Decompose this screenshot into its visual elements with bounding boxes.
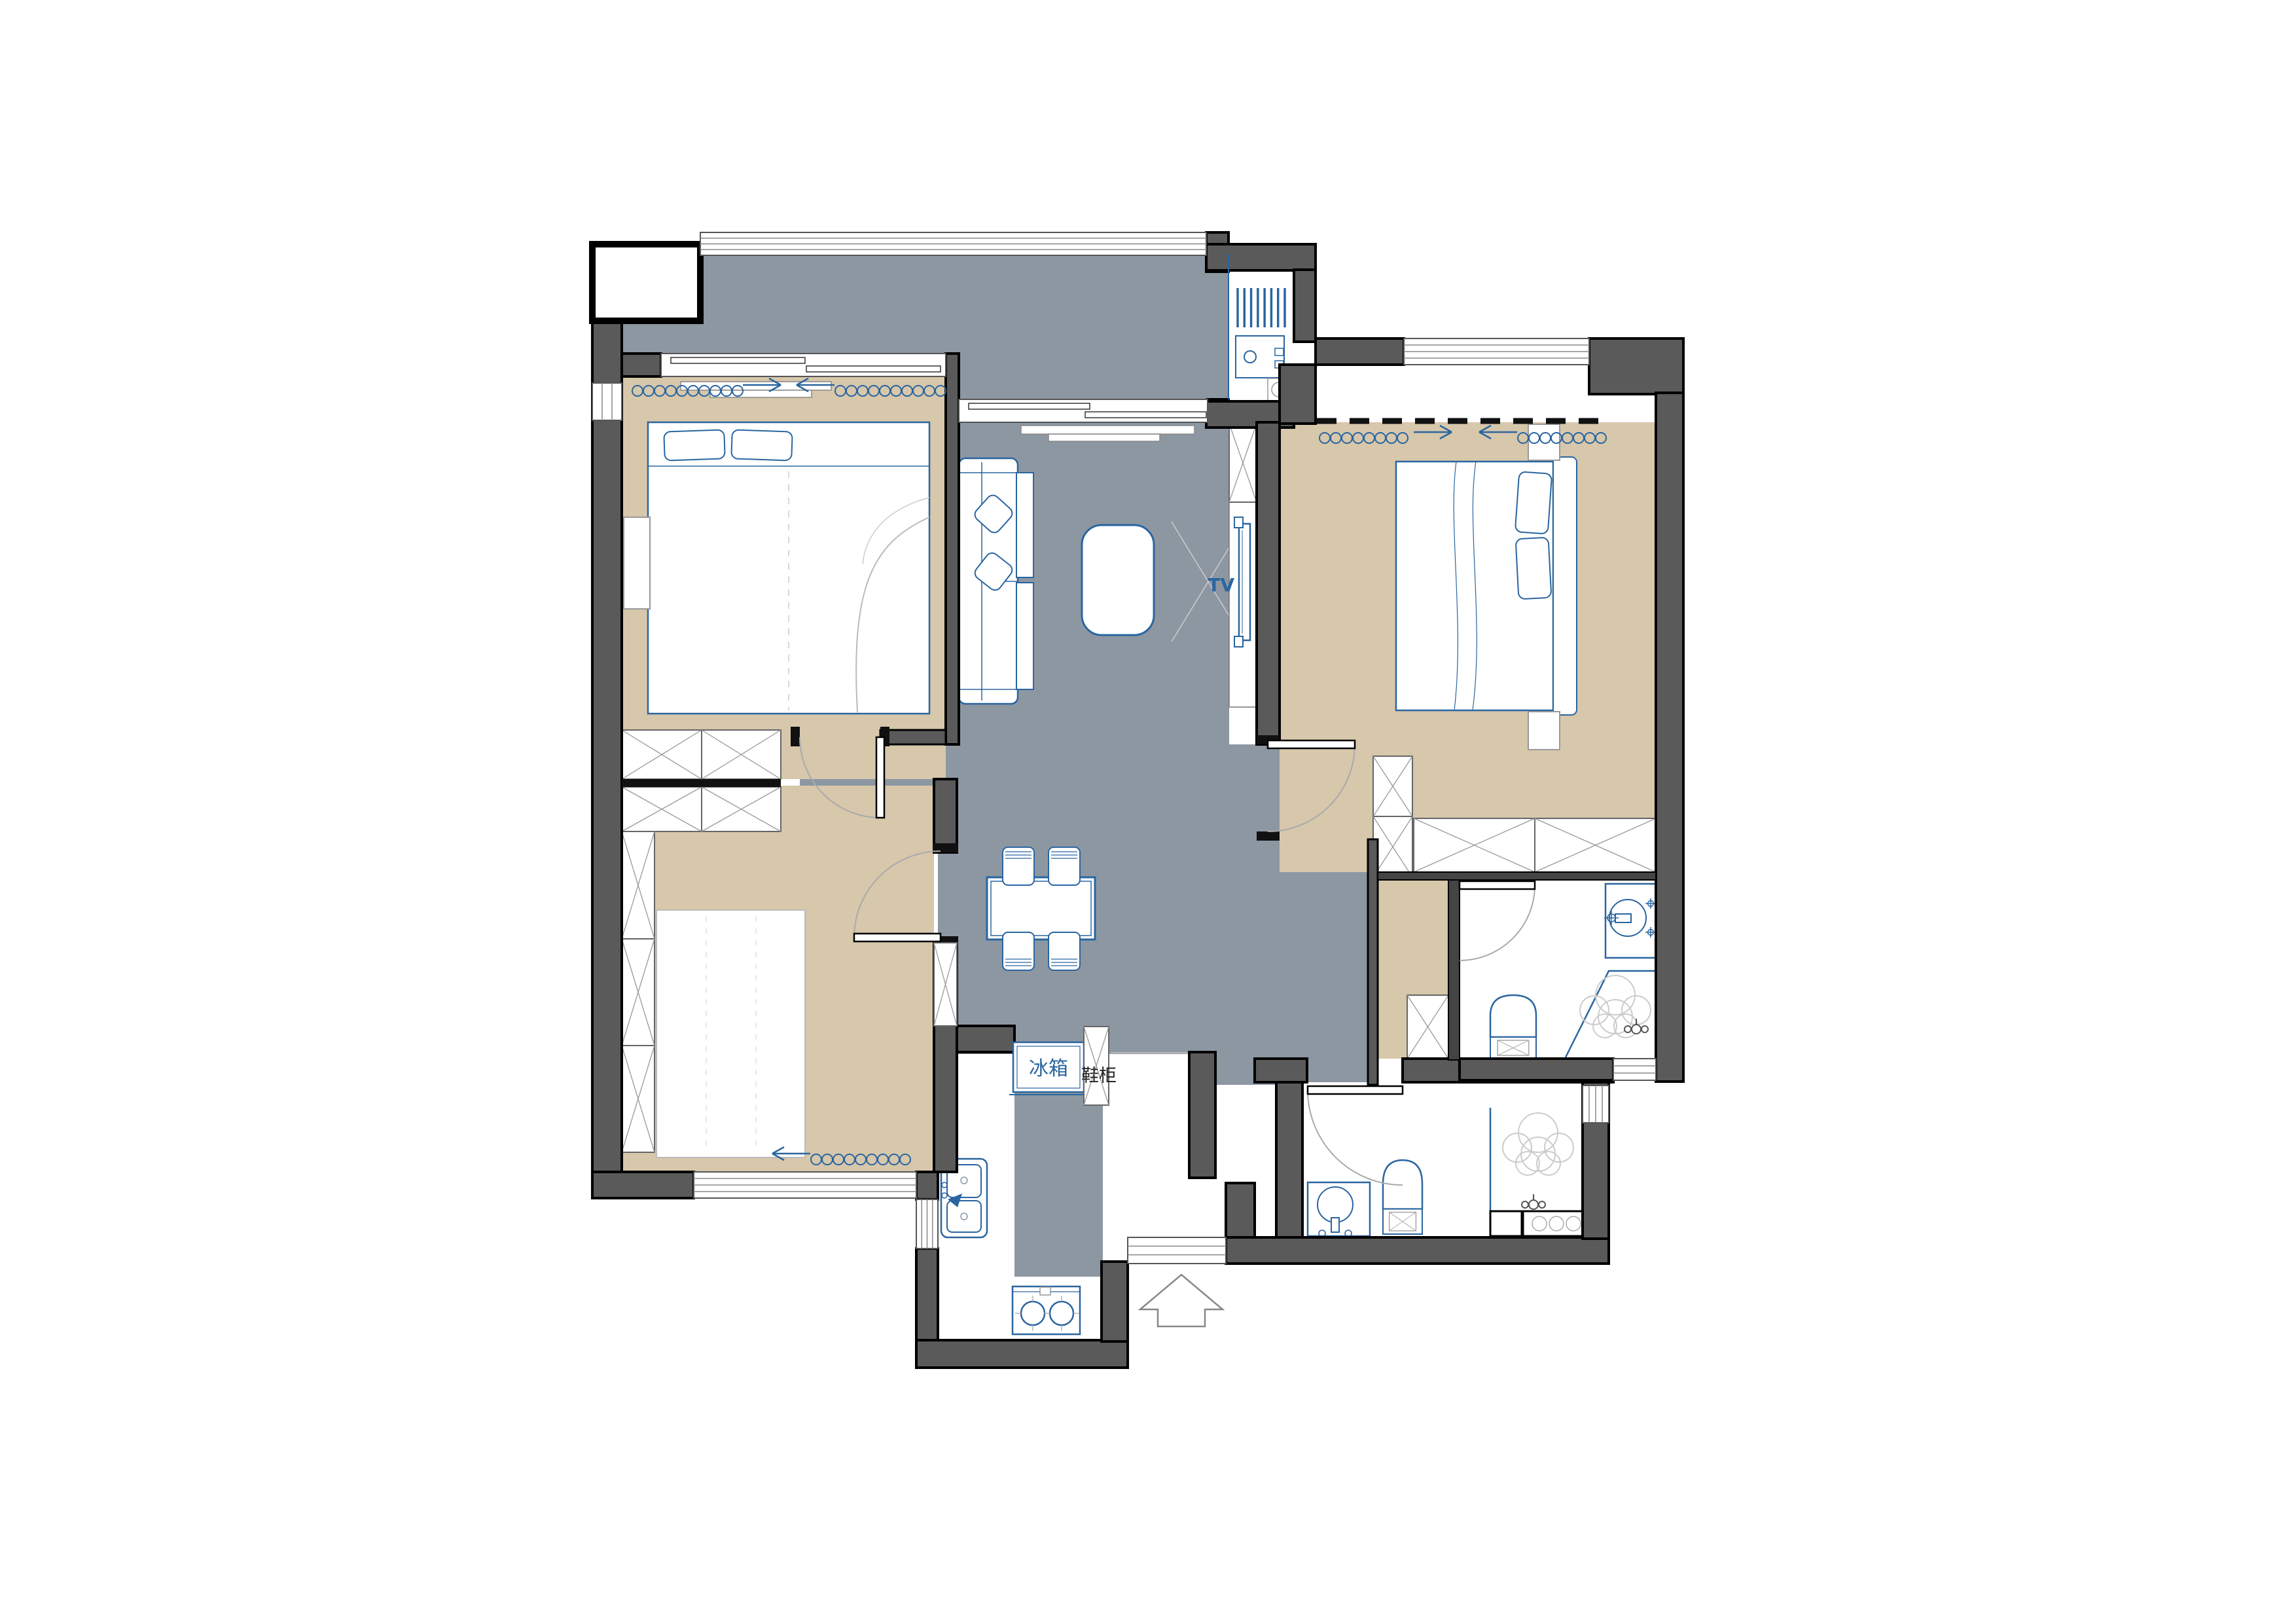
wall [592, 1172, 694, 1198]
master-headboard [1553, 457, 1577, 715]
wall [880, 730, 946, 744]
door-jamb [1257, 831, 1280, 841]
door-leaf-bedroom2 [854, 934, 941, 941]
dining-chair [1049, 932, 1080, 970]
wall [592, 319, 622, 1172]
sliding-door-leaf [671, 357, 805, 363]
living-ceiling-light [1049, 434, 1160, 441]
wall-thin [1378, 872, 1656, 880]
wall [1316, 338, 1404, 365]
wall [622, 354, 661, 376]
ensuite-shower-head [1641, 1026, 1648, 1032]
wall [1656, 393, 1683, 1082]
mainbath-shower-head [1522, 1201, 1528, 1208]
tv-screen [1239, 524, 1250, 640]
sofa-front-edge [1016, 473, 1033, 577]
door-leaf-master [1268, 740, 1355, 748]
coffee-table [1082, 525, 1154, 635]
mainbath-tap [1331, 1218, 1339, 1232]
wall [916, 1172, 938, 1199]
ensuite-window [1613, 1059, 1656, 1080]
bedroom1-nightstand [624, 517, 650, 609]
floor-plan-page: 冰箱鞋柜TV [0, 0, 2296, 1623]
wall [957, 1026, 1014, 1052]
living-ceiling-light [1021, 426, 1194, 434]
wall [916, 1249, 938, 1341]
wall [1226, 1183, 1255, 1239]
wall-thin [1448, 880, 1460, 1060]
bedroom1-pillow [731, 429, 792, 460]
dining-chair [1003, 847, 1034, 885]
mainbath-cabinet [1490, 1211, 1522, 1236]
wall [1226, 1237, 1609, 1264]
tv-mount [1234, 517, 1243, 528]
wall [946, 354, 959, 744]
door-leaf-mainbath [1308, 1086, 1403, 1094]
dining-chair [1049, 847, 1080, 885]
entrance-arrow [1140, 1275, 1223, 1326]
floor-plan-canvas: 冰箱鞋柜TV [0, 0, 2296, 1623]
sliding-door-leaf [806, 366, 941, 372]
door-jamb [791, 727, 800, 746]
dining-chair [1003, 932, 1034, 970]
wall [1368, 839, 1378, 1085]
wall [1255, 1059, 1307, 1082]
wall [916, 1340, 1128, 1368]
wall [934, 779, 957, 852]
wall [1589, 338, 1683, 394]
sliding-door-leaf [969, 403, 1090, 409]
wall [1280, 365, 1316, 424]
door-leaf-bedroom1 [876, 737, 884, 818]
washing-machine [1236, 336, 1284, 378]
tv-mount [1234, 636, 1243, 647]
mainbath-shower-head [1529, 1200, 1538, 1209]
bedroom1-pillow [664, 429, 725, 460]
master-pillow [1515, 471, 1552, 534]
sofa-front-edge [1016, 583, 1033, 689]
label-fridge: 冰箱 [1029, 1057, 1068, 1080]
wall [1294, 270, 1316, 342]
ensuite-toilet-bowl [1490, 995, 1536, 1037]
wall [1460, 1059, 1613, 1080]
entry-threshold [1128, 1237, 1226, 1264]
master-nightstand [1528, 712, 1560, 750]
label-tv: TV [1208, 574, 1234, 596]
flue-shaft [592, 244, 700, 321]
mainbath-shower-head [1539, 1201, 1545, 1208]
balcony-left-window [592, 383, 622, 420]
ensuite-shower-head [1632, 1025, 1641, 1034]
wall [1257, 422, 1280, 744]
ensuite-shower-head [1624, 1026, 1631, 1032]
wall [1276, 1082, 1302, 1239]
wall [1189, 1052, 1215, 1178]
bedroom2-bed [656, 910, 805, 1158]
dining-table [987, 877, 1095, 939]
door-leaf-ensuite [1460, 881, 1535, 889]
wall [1102, 1262, 1128, 1341]
master-pillow [1516, 538, 1552, 599]
kitchen-stove-knob [1040, 1287, 1050, 1295]
wall-partition [622, 779, 781, 787]
wall [1206, 244, 1316, 270]
sliding-door-leaf [1085, 412, 1206, 418]
master-nightstand [1528, 424, 1560, 460]
label-shoe-cabinet: 鞋柜 [1081, 1066, 1117, 1086]
